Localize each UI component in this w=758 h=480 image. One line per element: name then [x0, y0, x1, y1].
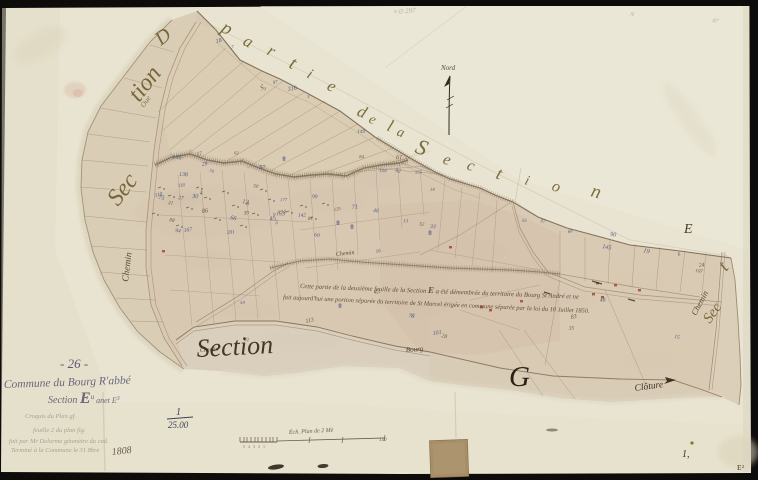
svg-text:G: G [509, 361, 530, 393]
svg-text:48: 48 [600, 297, 607, 304]
svg-text:Nord: Nord [440, 64, 456, 72]
svg-text:84: 84 [359, 155, 365, 160]
svg-text:151: 151 [415, 170, 423, 176]
svg-text:59: 59 [240, 301, 245, 306]
svg-text:90: 90 [610, 232, 617, 239]
svg-text:fait par Mr Delorme géomètre d: fait par Mr Delorme géomètre du cad. [9, 438, 109, 445]
svg-text:33: 33 [429, 224, 436, 230]
svg-text:61: 61 [396, 154, 403, 161]
svg-text:75: 75 [158, 194, 165, 202]
svg-text:134: 134 [278, 209, 287, 216]
svg-text:E: E [683, 222, 693, 237]
svg-text:177: 177 [280, 198, 288, 203]
svg-text:18: 18 [215, 38, 222, 45]
svg-text:118: 118 [178, 183, 186, 189]
svg-text:55: 55 [522, 219, 527, 224]
svg-text:149: 149 [357, 129, 365, 135]
svg-text:54321: 54321 [243, 444, 268, 449]
svg-text:- 26 -: - 26 - [60, 356, 88, 371]
svg-text:feuille 2 du plan fig.: feuille 2 du plan fig. [33, 427, 86, 434]
svg-text:167: 167 [183, 227, 192, 234]
svg-text:46: 46 [373, 208, 379, 214]
svg-text:E²: E² [737, 463, 745, 472]
svg-text:7: 7 [231, 45, 234, 51]
svg-text:Terminé à la Commune le 31 8br: Terminé à la Commune le 31 8bre [11, 447, 99, 454]
svg-text:1808: 1808 [111, 445, 132, 458]
svg-text:35: 35 [568, 325, 575, 332]
svg-text:30: 30 [191, 193, 199, 200]
svg-text:25.00: 25.00 [168, 420, 189, 430]
svg-text:83: 83 [570, 314, 577, 321]
svg-text:99: 99 [312, 194, 318, 200]
svg-text:101: 101 [432, 330, 442, 337]
svg-text:21: 21 [168, 200, 174, 207]
svg-text:92: 92 [395, 168, 402, 175]
svg-text:Section: Section [196, 330, 274, 363]
svg-text:≡⊙ 297: ≡⊙ 297 [393, 6, 417, 16]
svg-text:142: 142 [298, 213, 307, 219]
svg-text:29: 29 [202, 161, 209, 168]
svg-text:138: 138 [179, 172, 188, 178]
svg-text:150: 150 [379, 438, 387, 443]
svg-text:201: 201 [227, 229, 236, 236]
svg-text:149: 149 [172, 154, 181, 161]
svg-text:Croquis du Plan gf.: Croquis du Plan gf. [25, 413, 76, 420]
svg-text:14: 14 [430, 188, 436, 193]
svg-text:104: 104 [379, 167, 387, 174]
svg-text:11: 11 [410, 313, 415, 319]
svg-text:1,: 1, [682, 449, 690, 460]
svg-text:94: 94 [175, 228, 181, 235]
svg-text:71: 71 [351, 203, 358, 211]
svg-text:Bourg: Bourg [406, 345, 424, 354]
svg-text:107: 107 [695, 268, 704, 275]
svg-text:1: 1 [176, 407, 181, 418]
